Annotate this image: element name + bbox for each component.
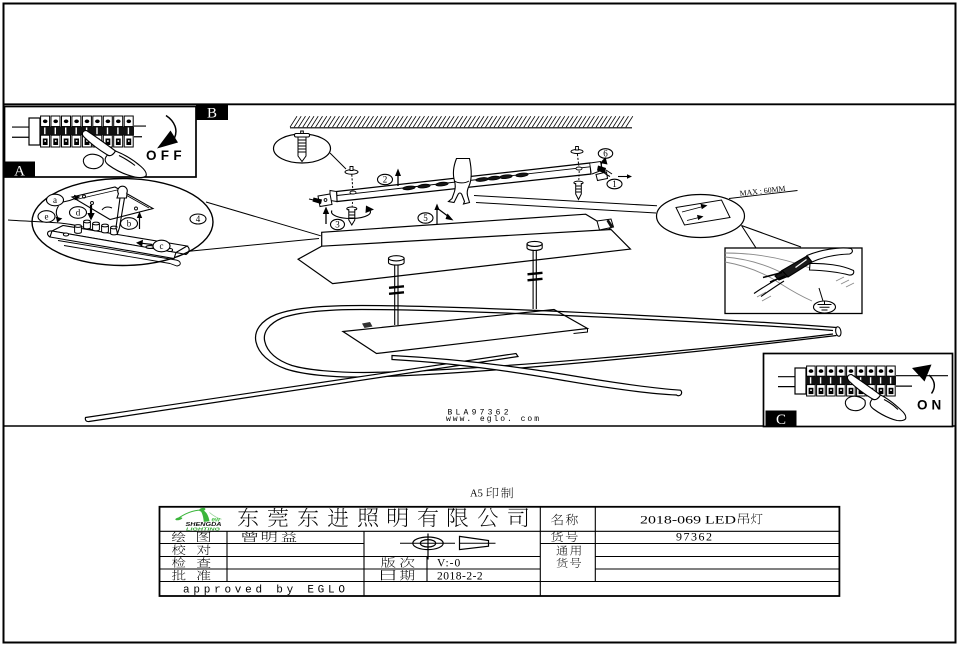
- svg-text:2018-069 LED: 2018-069 LED: [640, 513, 736, 527]
- svg-text:C: C: [776, 412, 786, 428]
- svg-text:2018-2-2: 2018-2-2: [437, 571, 483, 583]
- svg-text:A: A: [14, 164, 25, 180]
- svg-text:LIGHTING: LIGHTING: [186, 526, 220, 532]
- svg-text:OFF: OFF: [146, 148, 186, 163]
- svg-text:1: 1: [612, 179, 617, 189]
- svg-text:A5: A5: [470, 489, 483, 500]
- svg-text:ON: ON: [917, 398, 945, 413]
- svg-text:b: b: [127, 219, 132, 229]
- svg-text:97362: 97362: [676, 530, 714, 544]
- svg-text:4: 4: [196, 214, 201, 224]
- svg-text:6: 6: [603, 149, 608, 159]
- svg-text:5: 5: [423, 213, 428, 223]
- svg-text:a: a: [53, 195, 57, 205]
- svg-text:3: 3: [335, 220, 340, 230]
- svg-text:V:-0: V:-0: [437, 558, 461, 570]
- svg-text:B: B: [207, 106, 217, 122]
- svg-text:e: e: [45, 212, 49, 222]
- svg-text:2: 2: [383, 175, 388, 185]
- svg-text:www. eglo. com: www. eglo. com: [446, 415, 539, 424]
- svg-text:c: c: [160, 241, 164, 251]
- svg-text:d: d: [76, 208, 81, 218]
